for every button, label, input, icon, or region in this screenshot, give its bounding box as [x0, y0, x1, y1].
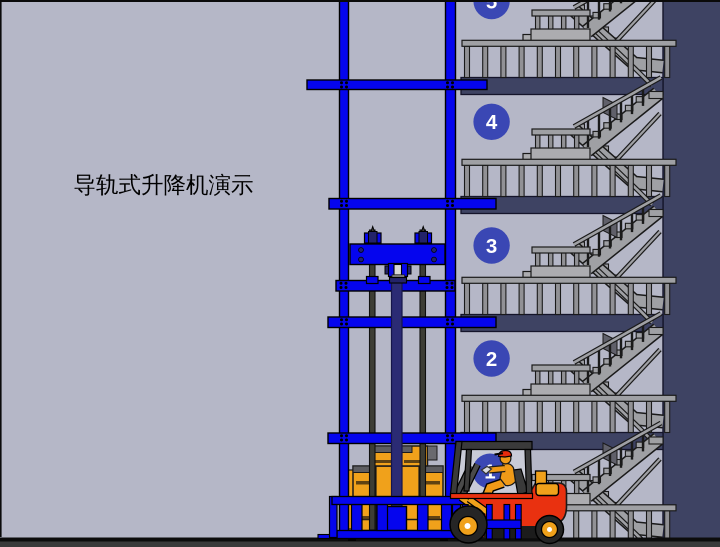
svg-text:3: 3	[486, 235, 497, 258]
svg-text:2: 2	[486, 348, 497, 371]
svg-text:4: 4	[486, 111, 498, 134]
